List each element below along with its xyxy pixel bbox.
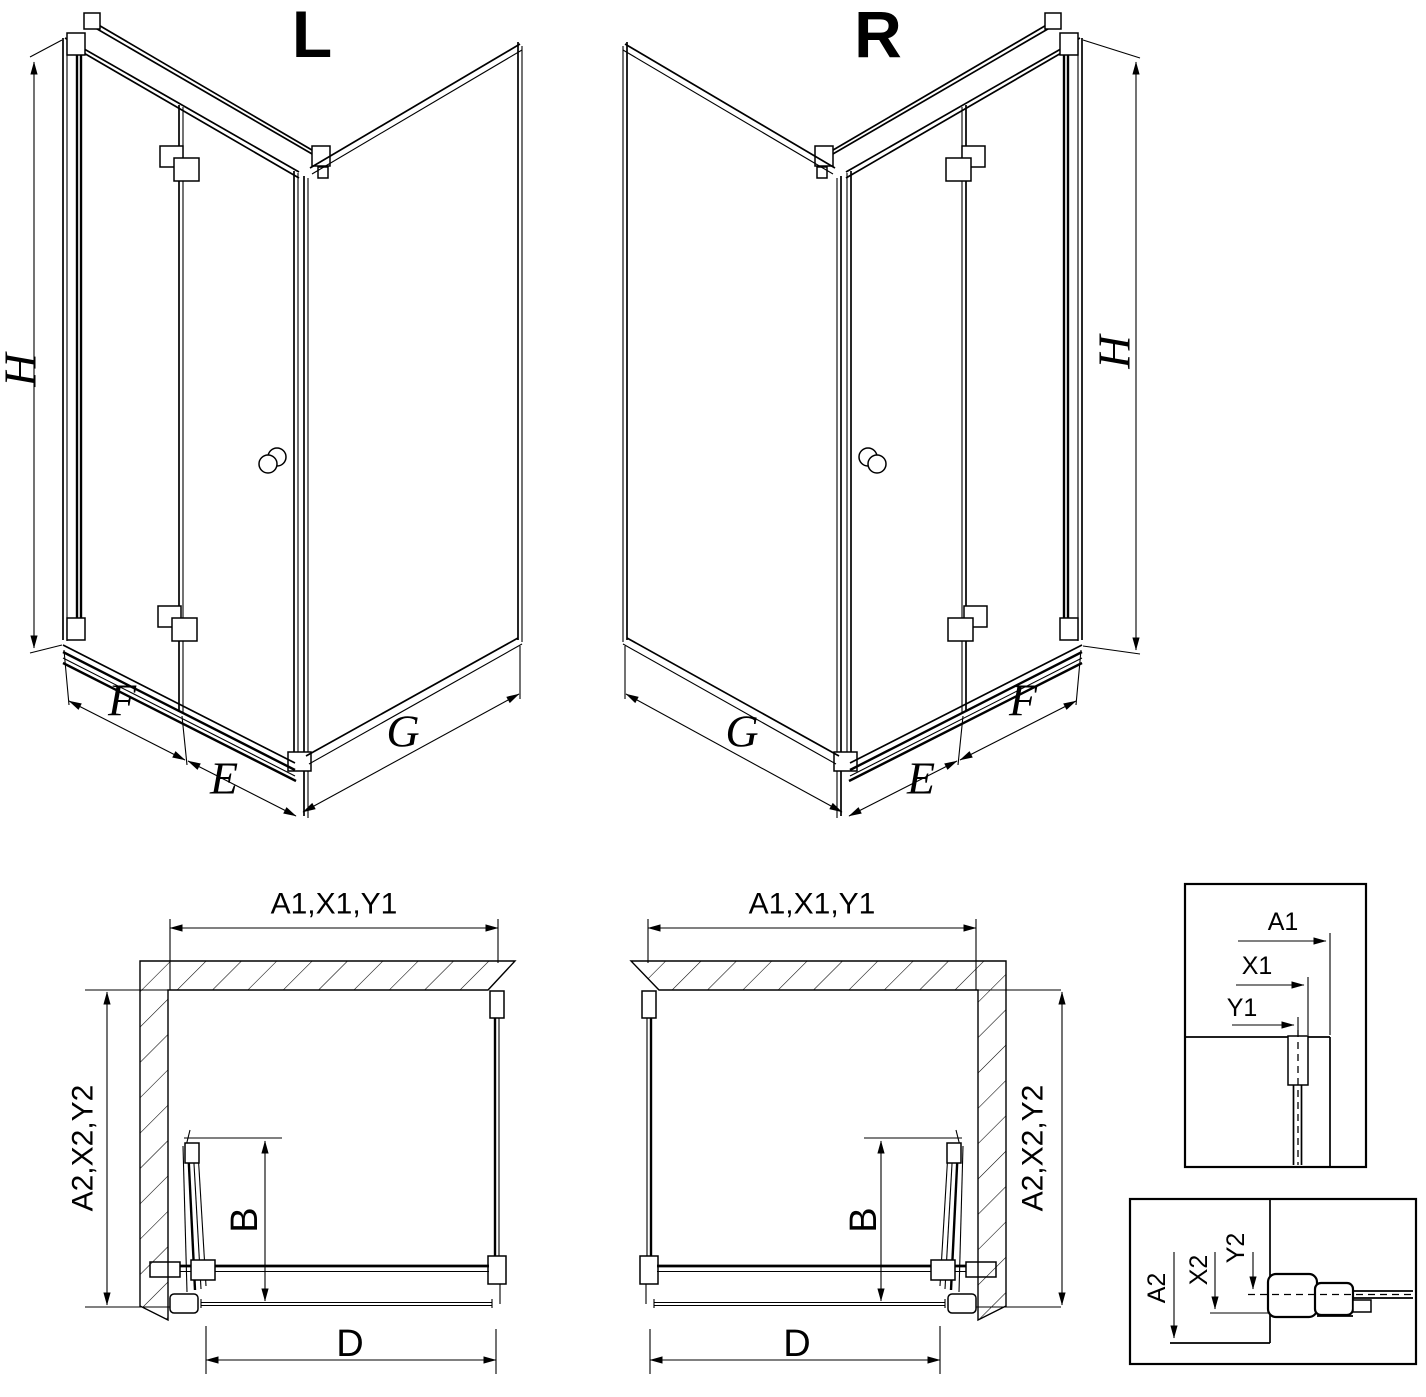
door-foot-bracket [170, 1294, 198, 1313]
dim-label-f-right: F [1008, 675, 1038, 726]
corner-connector [318, 167, 328, 178]
plan-right-top-dims: A1,X1,Y1 [749, 888, 876, 921]
plan-left-top-dims: A1,X1,Y1 [271, 888, 398, 921]
plan-right-side-dims: A2,X2,Y2 [1017, 1085, 1050, 1212]
detail-x2-label: X2 [1185, 1255, 1213, 1286]
plan-left-entry-width: D [336, 1323, 363, 1365]
shower-enclosure-diagram: L H F E G R H F E G [0, 0, 1426, 1397]
detail-a1-label: A1 [1268, 908, 1299, 936]
bar-end-cap [84, 13, 100, 29]
technical-drawing-page: L H F E G R H F E G [0, 0, 1426, 1397]
side-glass-plan [488, 991, 506, 1304]
door-handle [259, 448, 286, 473]
door-hinge-block [191, 1260, 215, 1280]
dim-label-e-right: E [906, 753, 935, 804]
door-pivot-top [185, 1143, 199, 1163]
profile-cross-section [1248, 1274, 1413, 1317]
dim-label-f-left: F [107, 675, 137, 726]
wall-bracket-bottom [67, 618, 85, 640]
corner-bracket-plan [488, 1256, 506, 1284]
iso-view-right: R H F E G [623, 0, 1140, 818]
plan-left-side-dims: A2,X2,Y2 [67, 1085, 100, 1212]
plan-left-door-projection: B [224, 1207, 266, 1232]
plan-right-door-projection: B [843, 1207, 885, 1232]
folded-door-plan [170, 1130, 215, 1313]
iso-right-title: R [854, 0, 902, 71]
detail-y2-label: Y2 [1222, 1233, 1250, 1264]
dim-label-height-left: H [0, 351, 46, 388]
bar-corner-bracket [312, 146, 330, 166]
plan-right-entry-width: D [783, 1323, 810, 1365]
plan-view-right: A1,X1,Y1 A2,X2,Y2 B D [631, 888, 1062, 1375]
fold-hinge-top-b [174, 158, 199, 181]
wall-anchor-profile-top [490, 991, 504, 1018]
dim-label-e-left: E [209, 753, 238, 804]
height-dimension-left [30, 40, 62, 653]
dim-label-g-right: G [725, 706, 758, 757]
dim-label-g-left: G [386, 706, 419, 757]
detail-y1-label: Y1 [1227, 994, 1258, 1022]
detail-a2-label: A2 [1143, 1273, 1171, 1304]
fold-hinge-bottom-b [172, 618, 197, 641]
detail-box-vertical: A2 X2 Y2 [1130, 1199, 1416, 1364]
iso-left-title: L [292, 0, 332, 71]
iso-dimension-lines [64, 646, 520, 816]
plan-view-left: A1,X1,Y1 A2,X2,Y2 B D [67, 888, 516, 1366]
dim-label-height-right: H [1089, 333, 1140, 370]
detail-x1-label: X1 [1242, 952, 1273, 980]
wall-bracket-top [67, 33, 85, 55]
detail-box-horizontal: A1 X1 Y1 [1185, 884, 1366, 1167]
